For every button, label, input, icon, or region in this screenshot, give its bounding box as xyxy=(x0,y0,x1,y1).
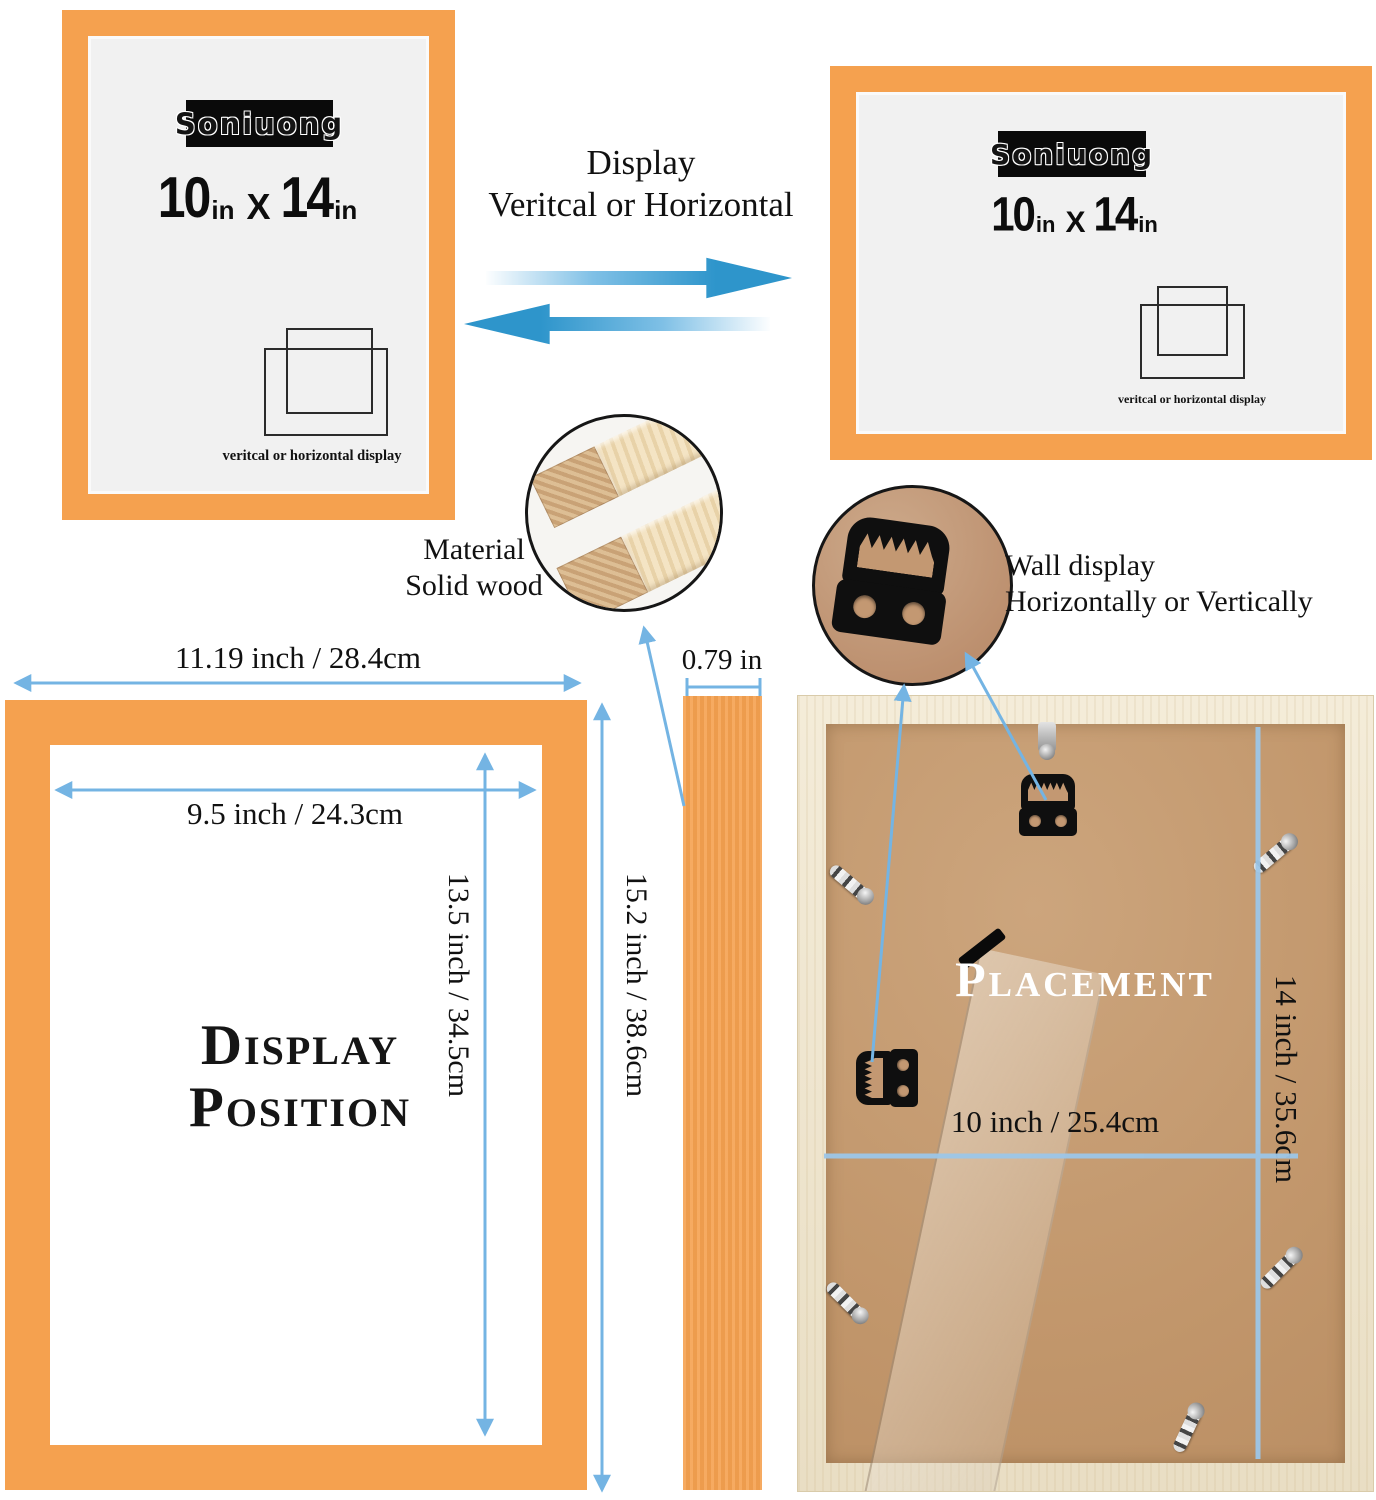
brand-name: Soniuong xyxy=(990,138,1154,171)
hanger-base xyxy=(890,1049,918,1107)
size-height: 14 xyxy=(281,164,333,231)
size-width: 10 xyxy=(991,187,1034,242)
size-separator: X xyxy=(246,186,270,228)
orientation-caption: veritcal or horizontal display xyxy=(1092,392,1292,407)
material-note-line2: Solid wood xyxy=(388,568,560,604)
swap-arrow-right-icon xyxy=(486,256,792,300)
display-orientation-note: Display Veritcal or Horizontal xyxy=(455,142,827,226)
dim-back-height: 14 inch / 35.6cm xyxy=(1266,914,1304,1244)
square-landscape xyxy=(1140,304,1245,379)
sawtooth-hanger-icon xyxy=(1019,774,1077,838)
hanger-screw-hole xyxy=(897,1059,909,1071)
size-label: 10inX14in xyxy=(968,194,1183,250)
dim-inner-height: 13.5 inch / 34.5cm xyxy=(439,835,475,1135)
clip-ring xyxy=(1039,744,1055,760)
wall-note-line2: Horizontally or Vertically xyxy=(1005,584,1350,620)
size-height-unit: in xyxy=(334,195,357,226)
display-position-line2: Position xyxy=(118,1077,482,1139)
size-height: 14 xyxy=(1094,187,1137,242)
wall-display-note: Wall display Horizontally or Vertically xyxy=(1005,548,1350,620)
hanger-screw-hole xyxy=(897,1085,909,1097)
frame-side-profile xyxy=(683,696,762,1490)
hanger-screw-hole xyxy=(1055,815,1067,827)
brand-logo: Soniuong xyxy=(998,131,1146,177)
wall-note-line1: Wall display xyxy=(1005,548,1350,584)
placement-title: Placement xyxy=(925,952,1245,1006)
size-width-unit: in xyxy=(1036,212,1056,238)
sawtooth-hanger-icon xyxy=(830,514,956,650)
dim-depth: 0.79 in xyxy=(672,644,772,677)
square-landscape xyxy=(264,348,388,436)
frame-front-vertical: Soniuong 10inX14in veritcal or horizonta… xyxy=(62,10,455,520)
material-note-line1: Material xyxy=(388,532,560,568)
display-note-line1: Display xyxy=(455,142,827,184)
product-infographic: Soniuong 10inX14in veritcal or horizonta… xyxy=(0,0,1376,1500)
wood-grain xyxy=(594,414,723,497)
size-width: 10 xyxy=(158,164,210,231)
hanging-clip-icon xyxy=(1038,722,1056,752)
size-height-unit: in xyxy=(1138,212,1158,238)
brand-name: Soniuong xyxy=(175,107,344,141)
orientation-caption: veritcal or horizontal display xyxy=(172,448,452,465)
size-label: 10inX14in xyxy=(102,173,415,241)
wall-hanger-zoom-circle xyxy=(812,485,1013,686)
sawtooth-hanger-icon xyxy=(856,1049,920,1107)
dim-outer-width: 11.19 inch / 28.4cm xyxy=(58,640,538,676)
display-position-line1: Display xyxy=(118,1015,482,1077)
material-note: Material Solid wood xyxy=(388,532,560,604)
dim-back-width: 10 inch / 25.4cm xyxy=(880,1104,1230,1140)
size-width-unit: in xyxy=(211,195,234,226)
dim-inner-width: 9.5 inch / 24.3cm xyxy=(95,796,495,832)
hanger-screw-hole xyxy=(1029,815,1041,827)
hanger-base xyxy=(1019,808,1077,836)
size-separator: X xyxy=(1065,206,1085,240)
display-position-title: Display Position xyxy=(118,1015,482,1138)
brand-logo: Soniuong xyxy=(186,100,333,147)
frame-front-horizontal: Soniuong 10inX14in veritcal or horizonta… xyxy=(830,66,1372,460)
swap-arrow-left-icon xyxy=(464,302,770,346)
dim-outer-height: 15.2 inch / 38.6cm xyxy=(617,835,653,1135)
display-note-line2: Veritcal or Horizontal xyxy=(455,184,827,226)
